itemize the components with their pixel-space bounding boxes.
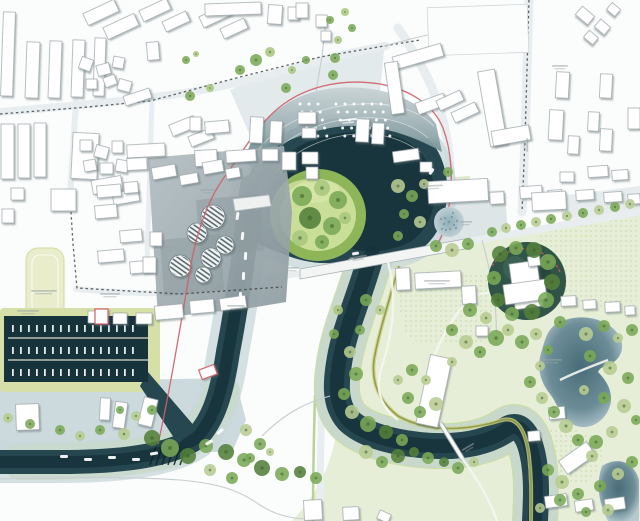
building [561, 296, 577, 307]
moored-boat [84, 325, 86, 332]
map-label-mark [545, 362, 558, 363]
moored-boat [20, 369, 22, 376]
moored-boat [116, 369, 118, 376]
tree-center-dot [364, 450, 367, 453]
moored-boat [52, 347, 54, 354]
building [25, 42, 40, 98]
building [1, 12, 16, 96]
map-label-mark [555, 68, 566, 69]
moored-boat [92, 325, 94, 332]
moored-boat [84, 369, 86, 376]
tree-center-dot [496, 298, 499, 301]
building [2, 209, 14, 223]
tree-center-dot [280, 472, 283, 475]
tree-center-dot [351, 27, 353, 29]
tree-center-dot [535, 221, 537, 223]
tree-center-dot [577, 493, 580, 496]
terrace-people-dot [352, 135, 355, 138]
map-label-mark [35, 293, 52, 294]
tree-center-dot [505, 227, 507, 229]
tree-center-dot [79, 435, 81, 437]
building [532, 191, 567, 211]
fountain-stipple [441, 228, 443, 230]
tree-center-dot [298, 236, 302, 240]
tree-center-dot [151, 409, 153, 411]
tree-center-dot [539, 365, 541, 367]
tree-center-dot [366, 422, 370, 426]
moored-boat [52, 325, 54, 332]
boat [132, 458, 140, 461]
moored-boat [20, 347, 22, 354]
tree-center-dot [447, 171, 449, 173]
moored-boat [60, 325, 62, 332]
building [143, 257, 156, 273]
building [100, 163, 113, 174]
tree-center-dot [635, 419, 637, 421]
tree-center-dot [249, 457, 251, 459]
tree-center-dot [419, 221, 422, 224]
map-label-mark [17, 310, 39, 312]
storage-tank-hatch [196, 268, 210, 282]
moored-boat [44, 347, 46, 354]
terrace-people-dot [353, 103, 356, 106]
tree-center-dot [195, 53, 197, 55]
moored-boat [92, 369, 94, 376]
building [18, 124, 30, 178]
highlighted-building [95, 309, 108, 324]
tree-center-dot [629, 203, 631, 205]
tree-center-dot [209, 469, 212, 472]
building [555, 72, 569, 99]
tree-center-dot [150, 436, 154, 440]
tree-center-dot [450, 248, 453, 251]
building [490, 192, 505, 205]
tree-center-dot [594, 440, 597, 443]
tree-center-dot [413, 451, 415, 453]
building [302, 128, 316, 138]
terrace-people-dot [380, 103, 383, 106]
map-label-mark [285, 267, 299, 269]
terrace-people-dot [350, 127, 353, 130]
storage-tank-hatch [202, 249, 220, 267]
building [306, 167, 318, 179]
site-plan-svg [0, 0, 640, 521]
tree-center-dot [582, 212, 584, 214]
building [262, 149, 278, 161]
building [51, 189, 76, 211]
terrace-people-dot [386, 127, 389, 130]
tree-center-dot [435, 245, 438, 248]
tree-center-dot [611, 431, 614, 434]
terrace-people-dot [371, 103, 374, 106]
tree-center-dot [407, 397, 410, 400]
tree-center-dot [123, 433, 126, 436]
map-label-mark [462, 224, 470, 225]
building [86, 79, 97, 89]
tree-center-dot [532, 248, 536, 252]
moored-boat [100, 369, 102, 376]
terrace-people-dot [343, 135, 346, 138]
moored-boat [28, 325, 30, 332]
tree-center-dot [577, 439, 580, 442]
tree-center-dot [315, 477, 318, 480]
tree-center-dot [255, 59, 258, 62]
map-label-mark [160, 249, 172, 250]
tree-center-dot [337, 309, 339, 311]
map-label-mark [103, 296, 116, 297]
building [136, 313, 152, 324]
building [249, 117, 263, 144]
tree-center-dot [544, 298, 548, 302]
moored-boat [28, 369, 30, 376]
tree-center-dot [529, 381, 532, 384]
moored-boat [108, 347, 110, 354]
tree-center-dot [494, 336, 498, 340]
building [112, 56, 125, 69]
moored-boat [92, 347, 94, 354]
map-label-mark [526, 138, 528, 152]
tree-center-dot [135, 415, 137, 417]
map-label-mark [542, 359, 562, 361]
moored-boat [28, 347, 30, 354]
moored-boat [84, 347, 86, 354]
tree-center-dot [379, 309, 381, 311]
building [528, 430, 541, 441]
tree-center-dot [559, 499, 562, 502]
moored-boat [100, 325, 102, 332]
fountain [434, 207, 464, 237]
tree-center-dot [510, 312, 513, 315]
tree-center-dot [344, 11, 346, 13]
building [282, 152, 296, 170]
tree-center-dot [365, 299, 368, 302]
building [1, 124, 14, 179]
fountain-stipple [453, 224, 455, 226]
map-label-mark [524, 140, 525, 149]
terrace-people-dot [364, 111, 367, 114]
moored-boat [20, 325, 22, 332]
building [83, 159, 97, 172]
tree-center-dot [547, 469, 550, 472]
tree-center-dot [541, 397, 544, 400]
tree-center-dot [427, 457, 430, 460]
terrace-people-dot [337, 111, 340, 114]
building [267, 5, 282, 25]
tree-center-dot [530, 310, 534, 314]
terrace-people-dot [375, 119, 378, 122]
building [269, 121, 282, 144]
tree-center-dot [231, 477, 234, 480]
fountain-stipple [449, 228, 451, 230]
moored-boat [108, 369, 110, 376]
fountain-stipple [444, 217, 446, 219]
tree-center-dot [185, 59, 187, 61]
moored-boat [12, 347, 14, 354]
tree-center-dot [411, 195, 414, 198]
tree-center-dot [434, 402, 437, 405]
terrace-people-dot [335, 103, 338, 106]
terrace-people-dot [388, 135, 391, 138]
building [112, 141, 123, 153]
boat [239, 292, 242, 300]
terrace-people-dot [362, 103, 365, 106]
building [371, 123, 384, 145]
tree-center-dot [330, 224, 334, 228]
terrace-people-dot [316, 135, 319, 138]
fountain-stipple [456, 220, 458, 222]
building [612, 169, 629, 180]
tree-center-dot [343, 393, 346, 396]
fountain-stipple [440, 218, 442, 220]
tree-center-dot [560, 480, 563, 483]
tree-center-dot [607, 509, 610, 512]
tree-center-dot [333, 333, 335, 335]
tree-center-dot [553, 411, 556, 414]
building [303, 500, 322, 521]
boat [108, 456, 116, 459]
moored-boat [132, 325, 134, 332]
tree-center-dot [479, 351, 482, 354]
building [302, 152, 318, 164]
tree-center-dot [520, 340, 523, 343]
moored-boat [124, 325, 126, 332]
moored-boat [44, 369, 46, 376]
fountain-stipple [448, 221, 450, 223]
building [355, 119, 369, 143]
moored-boat [60, 369, 62, 376]
tree-center-dot [397, 235, 399, 237]
building [99, 398, 110, 420]
building [548, 110, 564, 141]
moored-boat [68, 347, 70, 354]
tree-center-dot [7, 417, 9, 419]
building [476, 326, 488, 336]
tree-center-dot [492, 276, 495, 279]
terrace-people-dot [299, 103, 302, 106]
tree-center-dot [520, 224, 522, 226]
terrace-people-dot [355, 111, 358, 114]
tree-center-dot [336, 198, 340, 202]
tree-center-dot [99, 429, 101, 431]
building [605, 302, 621, 313]
tree-center-dot [354, 372, 357, 375]
tree-center-dot [401, 439, 404, 442]
moored-boat [44, 325, 46, 332]
tree-center-dot [539, 507, 541, 509]
building [48, 41, 62, 98]
moored-boat [60, 347, 62, 354]
tree-center-dot [617, 337, 619, 339]
moored-boat [76, 369, 78, 376]
tree-center-dot [491, 231, 493, 233]
building [127, 143, 166, 158]
tree-center-dot [332, 74, 334, 76]
building [296, 3, 308, 18]
building [150, 232, 162, 246]
building [98, 249, 125, 263]
building [189, 299, 214, 314]
tree-center-dot [269, 451, 271, 453]
moored-boat [12, 369, 14, 376]
boat [84, 458, 92, 461]
moored-boat [12, 325, 14, 332]
boat [60, 455, 68, 458]
tree-center-dot [384, 430, 387, 433]
tree-center-dot [329, 19, 331, 21]
building [462, 286, 477, 305]
moored-boat [68, 325, 70, 332]
moored-boat [76, 347, 78, 354]
building [205, 2, 261, 16]
tree-center-dot [451, 329, 454, 332]
fountain-stipple [452, 212, 454, 214]
tree-center-dot [622, 404, 625, 407]
map-label-mark [230, 308, 242, 309]
building [316, 15, 327, 27]
fountain-stipple [445, 229, 447, 231]
moored-boat [36, 347, 38, 354]
moored-boat [52, 369, 54, 376]
tree-center-dot [300, 194, 304, 198]
moored-boat [132, 369, 134, 376]
tree-center-dot [396, 184, 399, 187]
terrace-people-dot [384, 119, 387, 122]
terrace-people-dot [317, 103, 320, 106]
map-label-mark [100, 293, 120, 295]
map-label-mark [31, 290, 57, 292]
moored-boat [108, 325, 110, 332]
tree-center-dot [498, 252, 502, 256]
tree-center-dot [608, 366, 611, 369]
tree-center-dot [603, 397, 606, 400]
tree-center-dot [423, 183, 425, 185]
tree-center-dot [359, 329, 361, 331]
map-label-mark [200, 189, 216, 191]
tree-center-dot [614, 206, 616, 208]
moored-boat [100, 347, 102, 354]
storage-tank-hatch [217, 237, 233, 253]
moored-boat [116, 347, 118, 354]
tree-center-dot [59, 429, 61, 431]
tree-center-dot [550, 218, 552, 220]
tree-center-dot [305, 59, 307, 61]
tree-center-dot [451, 361, 453, 363]
tree-center-dot [209, 87, 211, 89]
tree-center-dot [591, 455, 594, 458]
building [599, 129, 612, 152]
map-label-mark [227, 305, 245, 307]
terrace-people-dot [373, 111, 376, 114]
tree-center-dot [546, 260, 550, 264]
building [604, 191, 623, 202]
tree-center-dot [242, 458, 245, 461]
tree-center-dot [550, 280, 554, 284]
tree-center-dot [308, 216, 313, 221]
tree-center-dot [485, 317, 488, 320]
tree-center-dot [299, 471, 302, 474]
building [80, 140, 92, 151]
masterplan-map [0, 0, 640, 521]
tree-center-dot [617, 473, 620, 476]
tree-center-dot [269, 51, 271, 53]
tree-center-dot [627, 377, 630, 380]
tree-center-dot [350, 410, 353, 413]
tree-center-dot [443, 461, 445, 463]
map-label-mark [203, 192, 214, 193]
tree-center-dot [467, 243, 470, 246]
map-label-mark [157, 246, 175, 248]
tree-center-dot [224, 450, 228, 454]
tree-center-dot [349, 351, 352, 354]
building [568, 136, 580, 155]
terrace-people-dot [323, 127, 326, 130]
storage-tank-hatch [170, 256, 190, 276]
tree-center-dot [603, 325, 606, 328]
tree-center-dot [457, 467, 460, 470]
tree-center-dot [589, 355, 592, 358]
building [226, 149, 257, 163]
tree-center-dot [464, 340, 467, 343]
moored-boat [124, 369, 126, 376]
moored-boat [116, 325, 118, 332]
terrace-people-dot [346, 111, 349, 114]
tree-center-dot [334, 57, 336, 59]
tree-center-dot [419, 411, 422, 414]
building [97, 184, 122, 198]
terrace-people-dot [344, 103, 347, 106]
building [560, 172, 574, 182]
tree-center-dot [186, 454, 190, 458]
map-label-mark [21, 313, 36, 314]
storage-tank-hatch [202, 206, 224, 228]
building [583, 300, 596, 310]
moored-boat [36, 325, 38, 332]
moored-boat [36, 369, 38, 376]
map-label-mark [460, 221, 472, 223]
map-label-mark [552, 65, 568, 67]
tree-center-dot [514, 246, 517, 249]
building [298, 112, 316, 124]
tree-center-dot [425, 379, 427, 381]
building [427, 4, 529, 55]
building [205, 120, 230, 134]
building [420, 162, 432, 172]
tree-center-dot [245, 429, 248, 432]
tree-center-dot [559, 321, 562, 324]
tree-center-dot [239, 69, 241, 71]
building [34, 123, 46, 177]
tree-center-dot [119, 409, 121, 411]
tree-center-dot [631, 461, 634, 464]
tree-center-dot [585, 511, 587, 513]
tree-center-dot [599, 485, 602, 488]
terrace-people-dot [308, 103, 311, 106]
tree-center-dot [285, 87, 287, 89]
tree-center-dot [535, 333, 538, 336]
building [225, 167, 241, 179]
building [190, 117, 201, 131]
building [124, 181, 139, 193]
building [576, 189, 595, 200]
building [343, 507, 360, 521]
tree-center-dot [631, 329, 634, 332]
tree-center-dot [29, 423, 31, 425]
fountain-stipple [443, 223, 445, 225]
map-label-mark [424, 280, 450, 282]
tree-center-dot [344, 217, 347, 220]
building [154, 304, 183, 320]
terrace-people-dot [341, 127, 344, 130]
